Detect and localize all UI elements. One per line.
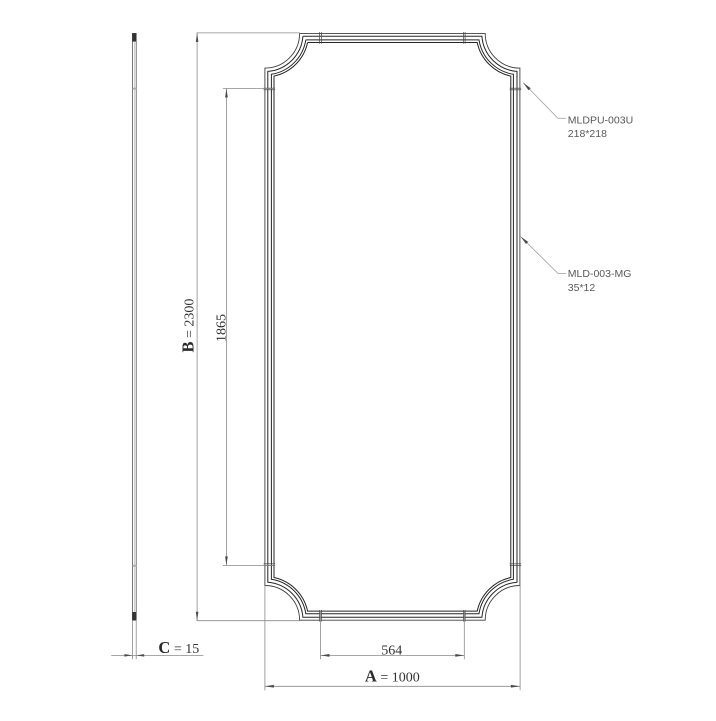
- svg-text:564: 564: [381, 644, 402, 659]
- svg-text:35*12: 35*12: [568, 282, 596, 294]
- svg-text:MLDPU-003U: MLDPU-003U: [568, 114, 633, 126]
- svg-text:218*218: 218*218: [568, 128, 607, 140]
- svg-text:MLD-003-MG: MLD-003-MG: [568, 268, 632, 280]
- svg-text:1865: 1865: [215, 314, 230, 342]
